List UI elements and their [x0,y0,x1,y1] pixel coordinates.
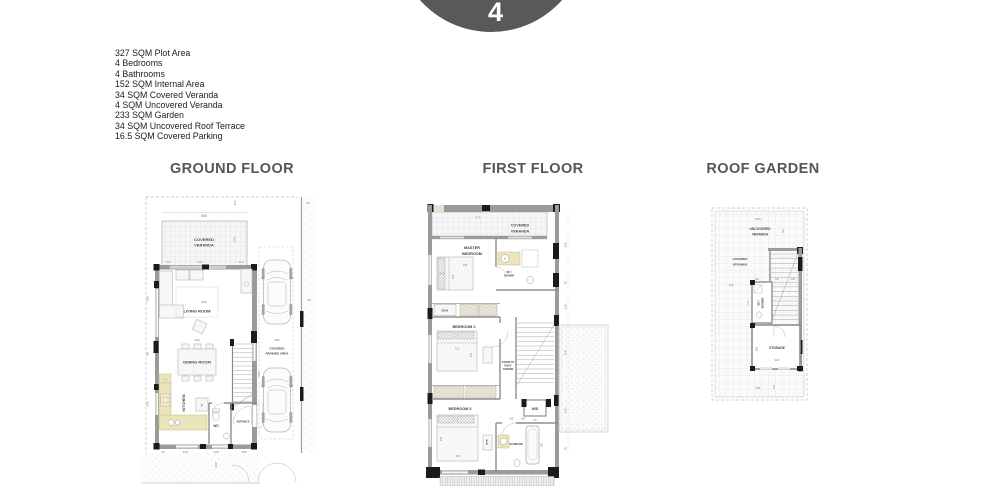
dim-bottom: 100 [241,450,246,454]
bedroom2-label: BEDROOM 2 [453,325,476,329]
dim-right: 258 [564,350,568,355]
laundry-closet: W/D 60 145 100 [509,399,551,422]
first-floor-plan: 575 COVERED VERANDA [420,195,664,497]
roof-garden-plan: 660 UNCOVERED VERANDA 95 COVERED VERANDA… [698,193,832,425]
dim-right: 70 [564,281,568,285]
ensuite-label: WC / [506,272,511,274]
dim-right: 346 [564,408,568,413]
parking-area: 290 COVERED PARKING AREA [259,247,293,439]
dim-bottom: 93 [161,450,165,454]
dim-laundry: 60 [534,418,537,422]
bedroom-wardrobe-band [432,386,500,400]
master-bedroom-label: BEDROOM [462,252,482,256]
kitchen: D/W F KITCHEN [159,374,208,430]
stairs-note: ROOF [505,365,512,368]
dim-bath: 200 [541,442,544,447]
dim-master-bed-h: 335 [451,274,455,279]
dishwasher-label: D/W [162,377,168,381]
spec-line: 233 SQM Garden [115,110,245,120]
dim-hall: 145 [509,417,514,421]
dim-bed3-h: 320 [439,436,443,441]
laundry-label: W/D [532,407,539,411]
dim-master-bed-w: 325 [463,263,468,267]
first-floor-title: FIRST FLOOR [440,161,626,177]
ground-veranda-label: VERANDA [194,243,214,248]
desk-label: DESK [442,310,449,313]
bedroom-3: BEDROOM 3 320 310 DESK [437,407,492,461]
first-veranda-label: COVERED [511,224,530,228]
dim-right: 265 [564,242,568,247]
parking-label: COVERED [270,347,286,351]
ensuite-wc-shower: WC / SHOWER [496,239,559,290]
dim-hall2: 100 [521,417,526,421]
bathroom-first: BATHROOM 200 [496,423,559,472]
ground-floor-plan: 505 COVERED VERANDA 50 600 123 308 115 [140,191,318,493]
kitchen-label: KITCHEN [182,394,186,411]
dim-roof-side: 95 [781,229,785,233]
dim-veranda-right: 123 [238,260,243,264]
bedroom3-label: BEDROOM 3 [449,407,472,411]
ensuite-label: SHOWER [504,276,515,278]
dim-storage-width: 223 [775,358,780,362]
roof-covered-veranda-label: COVERED [733,257,749,261]
spec-line: 327 SQM Plot Area [115,48,245,58]
roof-wc-label: WC / [758,300,761,306]
dining-room-label: DINING ROOM [183,360,211,365]
dim-bottom: 140 [182,450,187,454]
roof-garden-title: ROOF GARDEN [670,161,856,177]
bathroom-label: BATHROOM [509,443,522,446]
parking-label: PARKING AREA [266,352,290,356]
master-bedroom-label: MASTER [464,246,480,250]
dim-fence-top: 50 [307,201,310,205]
dim-bed2-w: 310 [455,347,460,351]
roof-covered-veranda-label: VERANDA [733,263,749,267]
desk-label: DESK [487,439,489,445]
ground-floor-title: GROUND FLOOR [139,161,325,177]
dim-bottom: 218 [213,450,218,454]
dim-right: 230 [564,304,568,309]
car [262,260,293,324]
uncovered-veranda-label: UNCOVERED [749,227,771,231]
entrance-ground: ENTRANCE [233,403,263,427]
first-veranda-label: VERANDA [511,230,530,234]
staircase-first: STAIRS TO ROOF GARDEN [492,317,554,399]
dim-plot-top: 505 [201,214,207,218]
dim-left-upper: 400 [146,296,150,301]
car [262,368,293,432]
dim-left-lower: 430 [146,401,150,406]
dim-bed2-h: 300 [469,352,473,357]
dim-veranda-height: 308 [233,237,237,242]
roof-wc-label: SHOWER [762,297,765,308]
stairs-note: STAIRS TO [502,361,515,364]
dim-bed3-w: 310 [456,454,461,458]
living-room-label: LIVING ROOM [184,309,212,314]
entrance-label: ENTRANCE [237,421,250,424]
dim-roof-top: 660 [755,217,760,221]
stairs-note: GARDEN [503,368,514,371]
spec-line: 152 SQM Internal Area [115,79,245,89]
dim-veranda-left: 50 [166,260,170,264]
dim-veranda-width: 600 [197,260,202,264]
ground-covered-veranda: 505 COVERED VERANDA 50 600 123 308 115 [162,200,247,267]
spec-line: 4 SQM Uncovered Veranda [115,100,245,110]
dim-roof-bottom: 560 [756,386,761,390]
dim-roof-bottom-side: 120 [772,384,776,389]
spec-list: 327 SQM Plot Area 4 Bedrooms 4 Bathrooms… [115,48,245,142]
dim-fence-mid: 60 [308,298,311,302]
wc-label: WC [213,424,219,428]
spec-line: 34 SQM Uncovered Roof Terrace [115,121,245,131]
spec-line: 4 Bathrooms [115,69,245,79]
first-veranda: 575 COVERED VERANDA [432,212,547,236]
master-bedroom: MASTER BEDROOM 325 335 [437,246,482,290]
terrace-below: 265 70 230 258 346 70 [559,211,608,453]
page: { "header": { "villa_number": "4" }, "sp… [0,0,1000,500]
master-wardrobe-band: DESK [432,304,500,318]
dim-parking-length: 290 [275,338,280,342]
dim-side-top: 115 [233,200,237,205]
dim-storage-height: 300 [756,346,759,351]
ground-veranda-label: COVERED [194,237,214,242]
dim-first-top: 575 [475,216,480,220]
spec-line: 4 Bedrooms [115,58,245,68]
living-room: 520 LIVING ROOM 420 [160,269,253,342]
spec-line: 34 SQM Covered Veranda [115,90,245,100]
dim-left-mid: 90 [146,352,150,356]
dim-living-width: 520 [201,300,206,304]
storage-label: STORAGE [769,346,785,350]
uncovered-veranda-label: VERANDA [752,233,769,237]
dim-garden: 260 [214,462,218,467]
spec-line: 16.5 SQM Covered Parking [115,131,245,141]
dim-right: 70 [564,447,568,451]
villa-number: 4 [474,0,518,28]
dim-roof-left: 206 [729,283,734,287]
bedroom-2: BEDROOM 2 310 300 [437,325,492,371]
fridge-label: F [201,404,203,408]
dining-room: DINING ROOM [178,344,216,381]
dim-living-inner: 420 [194,338,199,342]
